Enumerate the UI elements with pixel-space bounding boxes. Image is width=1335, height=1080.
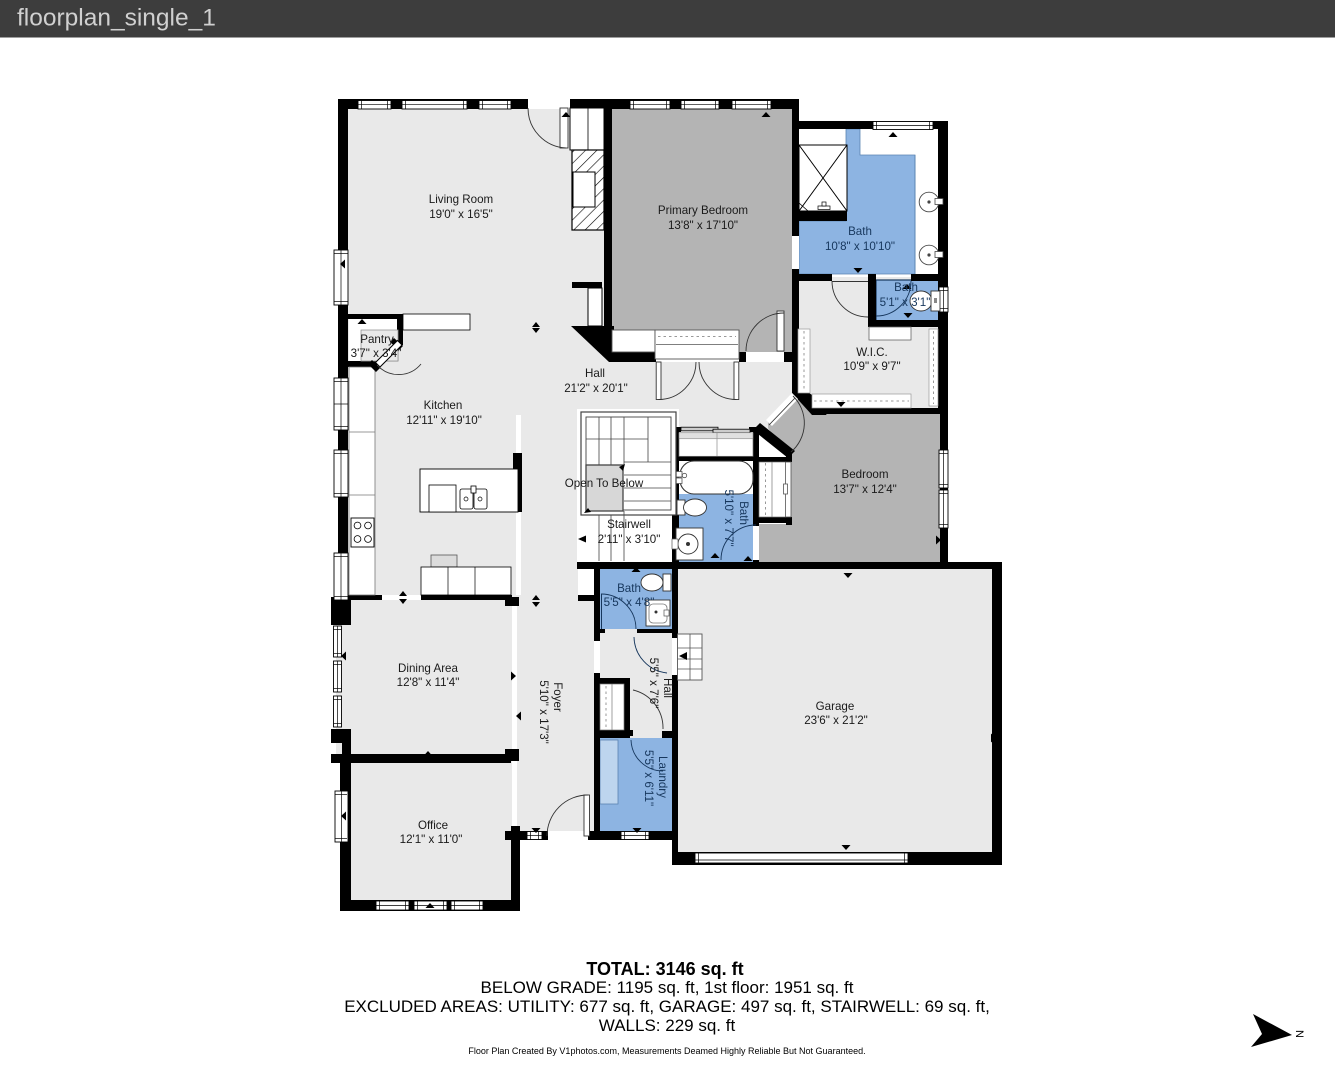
svg-text:WALLS: 229 sq. ft: WALLS: 229 sq. ft <box>599 1016 736 1035</box>
svg-text:5'5" x 7'6": 5'5" x 7'6" <box>647 658 660 709</box>
svg-text:23'6" x 21'2": 23'6" x 21'2" <box>804 714 868 727</box>
svg-text:Living Room: Living Room <box>429 193 493 206</box>
svg-text:13'8" x 17'10": 13'8" x 17'10" <box>668 219 738 232</box>
svg-text:Hall: Hall <box>661 678 674 698</box>
svg-text:21'2" x 20'1": 21'2" x 20'1" <box>564 382 628 395</box>
svg-text:Pantry: Pantry <box>360 333 394 346</box>
svg-text:5'5" x 6'11": 5'5" x 6'11" <box>642 750 655 806</box>
svg-text:Floor Plan Created By V1photos: Floor Plan Created By V1photos.com, Meas… <box>468 1046 865 1056</box>
svg-text:Garage: Garage <box>816 700 855 713</box>
svg-text:Bedroom: Bedroom <box>841 468 888 481</box>
svg-text:2'11" x 3'10": 2'11" x 3'10" <box>598 533 661 546</box>
svg-text:12'8" x 11'4": 12'8" x 11'4" <box>397 676 460 689</box>
svg-text:Bath: Bath <box>848 225 872 238</box>
svg-text:5'10" x 17'3": 5'10" x 17'3" <box>537 680 550 744</box>
svg-text:TOTAL: 3146 sq. ft: TOTAL: 3146 sq. ft <box>586 959 743 979</box>
svg-text:Stairwell: Stairwell <box>607 518 651 531</box>
svg-text:Kitchen: Kitchen <box>424 399 463 412</box>
svg-text:12'11" x 19'10": 12'11" x 19'10" <box>406 414 482 427</box>
svg-text:10'8" x 10'10": 10'8" x 10'10" <box>825 240 895 253</box>
svg-text:Dining Area: Dining Area <box>398 662 458 675</box>
svg-text:W.I.C.: W.I.C. <box>856 346 888 359</box>
svg-text:19'0" x 16'5": 19'0" x 16'5" <box>429 208 493 221</box>
svg-text:Open To Below: Open To Below <box>565 477 644 490</box>
svg-text:Bath: Bath <box>617 582 641 595</box>
svg-text:floorplan_single_1: floorplan_single_1 <box>17 5 216 32</box>
svg-text:Bath: Bath <box>737 501 750 525</box>
svg-text:Laundry: Laundry <box>656 756 669 798</box>
svg-text:Office: Office <box>418 819 448 832</box>
svg-text:5'5" x 4'8": 5'5" x 4'8" <box>604 596 655 609</box>
svg-text:Foyer: Foyer <box>551 682 564 712</box>
svg-text:N: N <box>1293 1030 1305 1038</box>
svg-text:5'1" x 3'1": 5'1" x 3'1" <box>880 296 931 309</box>
svg-text:13'7" x 12'4": 13'7" x 12'4" <box>833 483 897 496</box>
svg-text:Primary Bedroom: Primary Bedroom <box>658 204 748 217</box>
svg-text:Hall: Hall <box>585 367 605 380</box>
svg-text:5'10" x 7'7": 5'10" x 7'7" <box>722 489 735 546</box>
svg-text:12'1" x 11'0": 12'1" x 11'0" <box>400 833 463 846</box>
svg-text:10'9" x 9'7": 10'9" x 9'7" <box>843 360 900 373</box>
svg-text:3'7" x 3'4": 3'7" x 3'4" <box>351 347 402 360</box>
svg-text:EXCLUDED AREAS: UTILITY: 677 s: EXCLUDED AREAS: UTILITY: 677 sq. ft, GAR… <box>344 997 990 1016</box>
svg-text:BELOW GRADE: 1195 sq. ft, 1st: BELOW GRADE: 1195 sq. ft, 1st floor: 195… <box>481 978 854 997</box>
svg-text:Bath: Bath <box>894 281 918 294</box>
